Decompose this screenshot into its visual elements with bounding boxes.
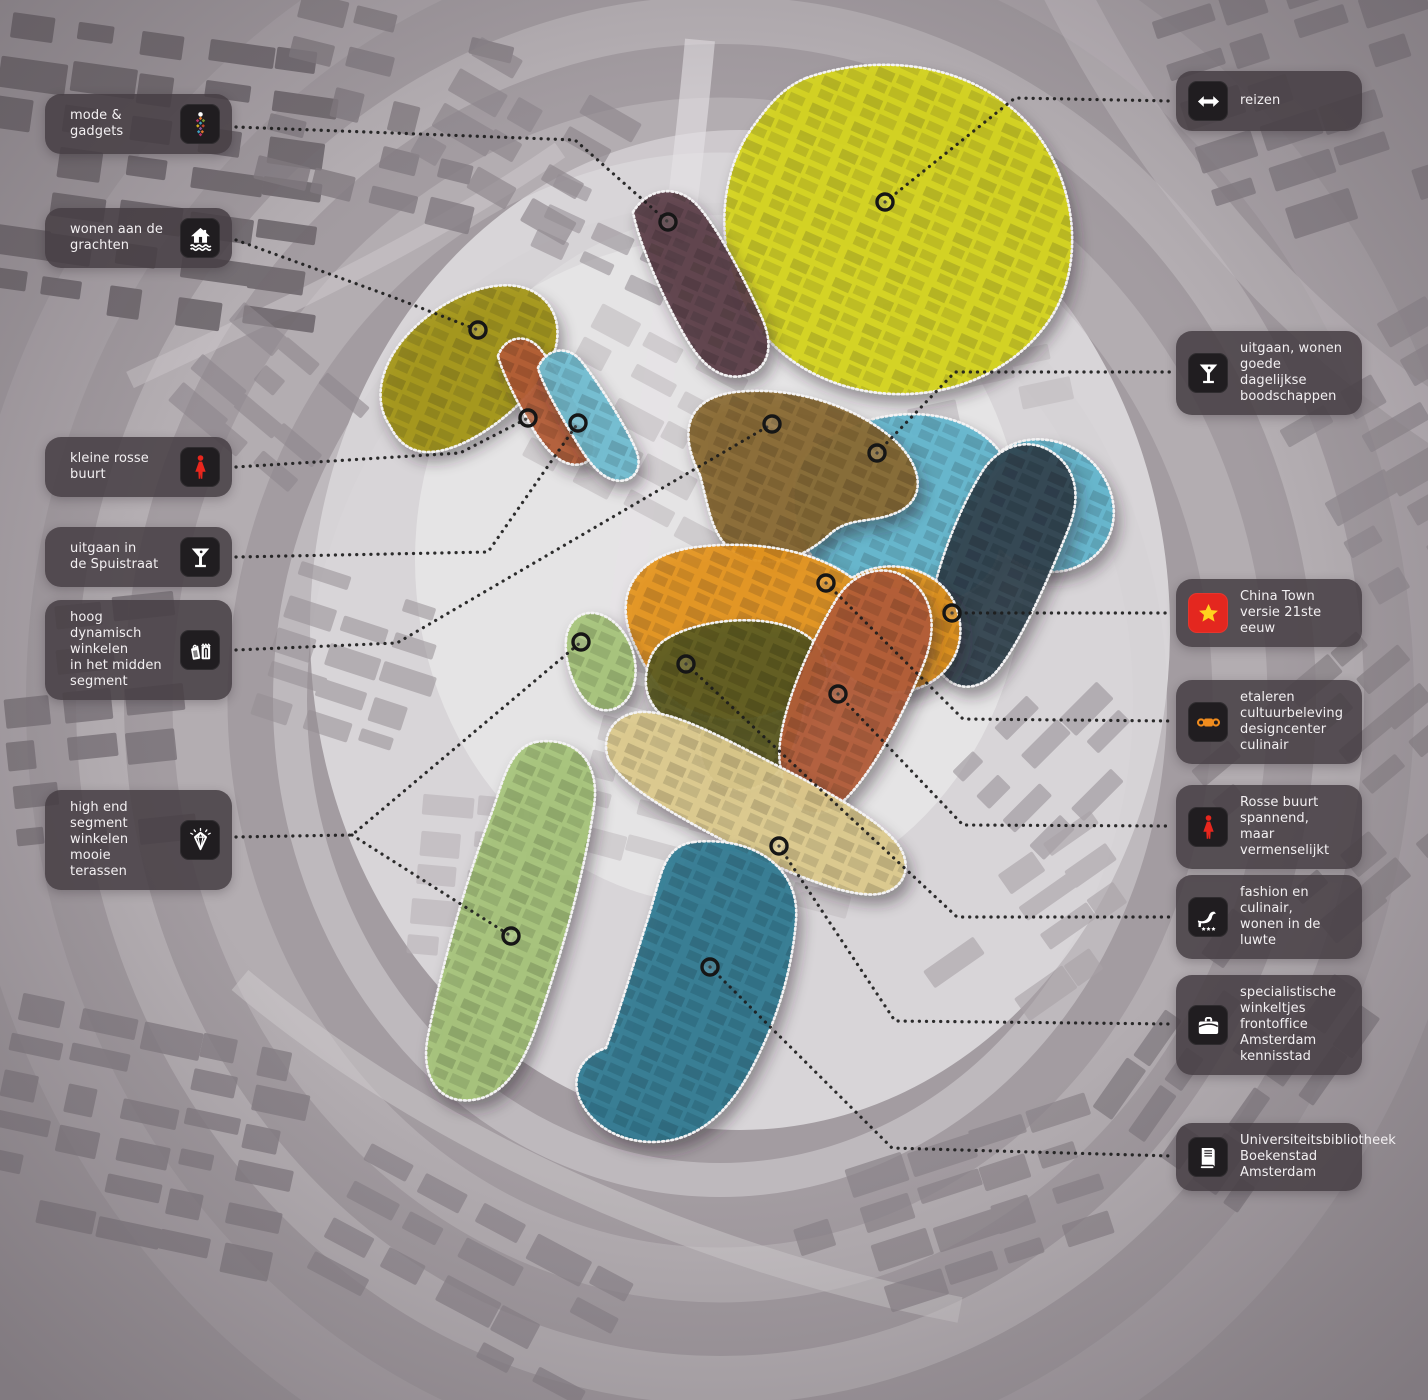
label-line: designcenter (1240, 722, 1346, 738)
label-specialistische: specialistischewinkeltjesfrontoffice Ams… (1176, 975, 1362, 1075)
label-line: hoog dynamisch (70, 610, 168, 642)
shopping-bags-icon (180, 630, 220, 670)
cocktail-icon (180, 537, 220, 577)
label-line: fashion en culinair, (1240, 885, 1346, 917)
woman-icon (1188, 807, 1228, 847)
book-icon (1188, 1137, 1228, 1177)
label-text: fashion en culinair,wonen in de luwte (1240, 885, 1350, 949)
label-line: cultuurbeleving (1240, 706, 1346, 722)
fashion-figure-icon (180, 104, 220, 144)
label-line: winkeltjes (1240, 1001, 1346, 1017)
label-line: vermenselijkt (1240, 843, 1346, 859)
label-text: UniversiteitsbibliotheekBoekenstad Amste… (1240, 1133, 1400, 1181)
label-line: reizen (1240, 93, 1346, 109)
label-line: versie 21ste eeuw (1240, 605, 1346, 637)
label-line: Universiteitsbibliotheek (1240, 1133, 1396, 1149)
label-line: mooie terassen (70, 848, 168, 880)
label-text: China Townversie 21ste eeuw (1240, 589, 1350, 637)
label-line: frontoffice Amsterdam (1240, 1017, 1346, 1049)
label-line: winkelen (70, 642, 168, 658)
label-line: uitgaan, wonen (1240, 341, 1346, 357)
label-line: culinair (1240, 738, 1346, 754)
label-mode-gadgets: mode & gadgets (45, 94, 232, 154)
label-text: Rosse buurtspannend, maarvermenselijkt (1240, 795, 1350, 859)
label-line: de Spuistraat (70, 557, 168, 573)
label-etaleren: etalerencultuurbelevingdesigncenterculin… (1176, 680, 1362, 764)
label-line: kennisstad (1240, 1049, 1346, 1065)
label-text: wonen aan degrachten (57, 222, 168, 254)
label-line: specialistische (1240, 985, 1346, 1001)
label-kleine-rosse-buurt: kleine rosse buurt (45, 437, 232, 497)
label-line: Rosse buurt (1240, 795, 1346, 811)
label-rosse-buurt: Rosse buurtspannend, maarvermenselijkt (1176, 785, 1362, 869)
label-line: goede dagelijkse (1240, 357, 1346, 389)
label-high-end: high end segmentwinkelenmooie terassen (45, 790, 232, 890)
heel-stars-icon (1188, 897, 1228, 937)
label-hoog-dynamisch: hoog dynamischwinkelenin het middensegme… (45, 600, 232, 700)
label-text: hoog dynamischwinkelenin het middensegme… (57, 610, 168, 690)
label-line: in het midden (70, 658, 168, 674)
label-china-town: China Townversie 21ste eeuw (1176, 579, 1362, 647)
briefcase-icon (1188, 1005, 1228, 1045)
label-text: specialistischewinkeltjesfrontoffice Ams… (1240, 985, 1350, 1065)
label-line: China Town (1240, 589, 1346, 605)
label-line: boodschappen (1240, 389, 1346, 405)
label-uitgaan-spuistraat: uitgaan inde Spuistraat (45, 527, 232, 587)
ns-arrows-icon (1188, 81, 1228, 121)
label-line: uitgaan in (70, 541, 168, 557)
label-universiteitsbibliotheek: UniversiteitsbibliotheekBoekenstad Amste… (1176, 1123, 1362, 1191)
label-reizen: reizen (1176, 71, 1362, 131)
star-icon (1188, 593, 1228, 633)
legend-labels: mode & gadgetswonen aan degrachtenkleine… (0, 0, 1428, 1400)
label-text: etalerencultuurbelevingdesigncenterculin… (1240, 690, 1350, 754)
label-line: Boekenstad Amsterdam (1240, 1149, 1396, 1181)
label-line: winkelen (70, 832, 168, 848)
label-line: grachten (70, 238, 168, 254)
label-uitgaan-wonen: uitgaan, wonengoede dagelijkseboodschapp… (1176, 331, 1362, 415)
label-wonen-grachten: wonen aan degrachten (45, 208, 232, 268)
label-line: etaleren (1240, 690, 1346, 706)
label-text: mode & gadgets (57, 108, 168, 140)
label-fashion-culinair: fashion en culinair,wonen in de luwte (1176, 875, 1362, 959)
label-line: wonen in de luwte (1240, 917, 1346, 949)
woman-icon (180, 447, 220, 487)
label-line: kleine rosse buurt (70, 451, 168, 483)
label-text: high end segmentwinkelenmooie terassen (57, 800, 168, 880)
label-line: segment (70, 674, 168, 690)
label-line: spannend, maar (1240, 811, 1346, 843)
label-text: kleine rosse buurt (57, 451, 168, 483)
connector-icon (1188, 702, 1228, 742)
diamond-icon (180, 820, 220, 860)
city-zone-map: mode & gadgetswonen aan degrachtenkleine… (0, 0, 1428, 1400)
cocktail-icon (1188, 353, 1228, 393)
label-text: uitgaan, wonengoede dagelijkseboodschapp… (1240, 341, 1350, 405)
label-line: mode & gadgets (70, 108, 168, 140)
label-line: wonen aan de (70, 222, 168, 238)
label-text: uitgaan inde Spuistraat (57, 541, 168, 573)
label-line: high end segment (70, 800, 168, 832)
label-text: reizen (1240, 93, 1350, 109)
house-water-icon (180, 218, 220, 258)
